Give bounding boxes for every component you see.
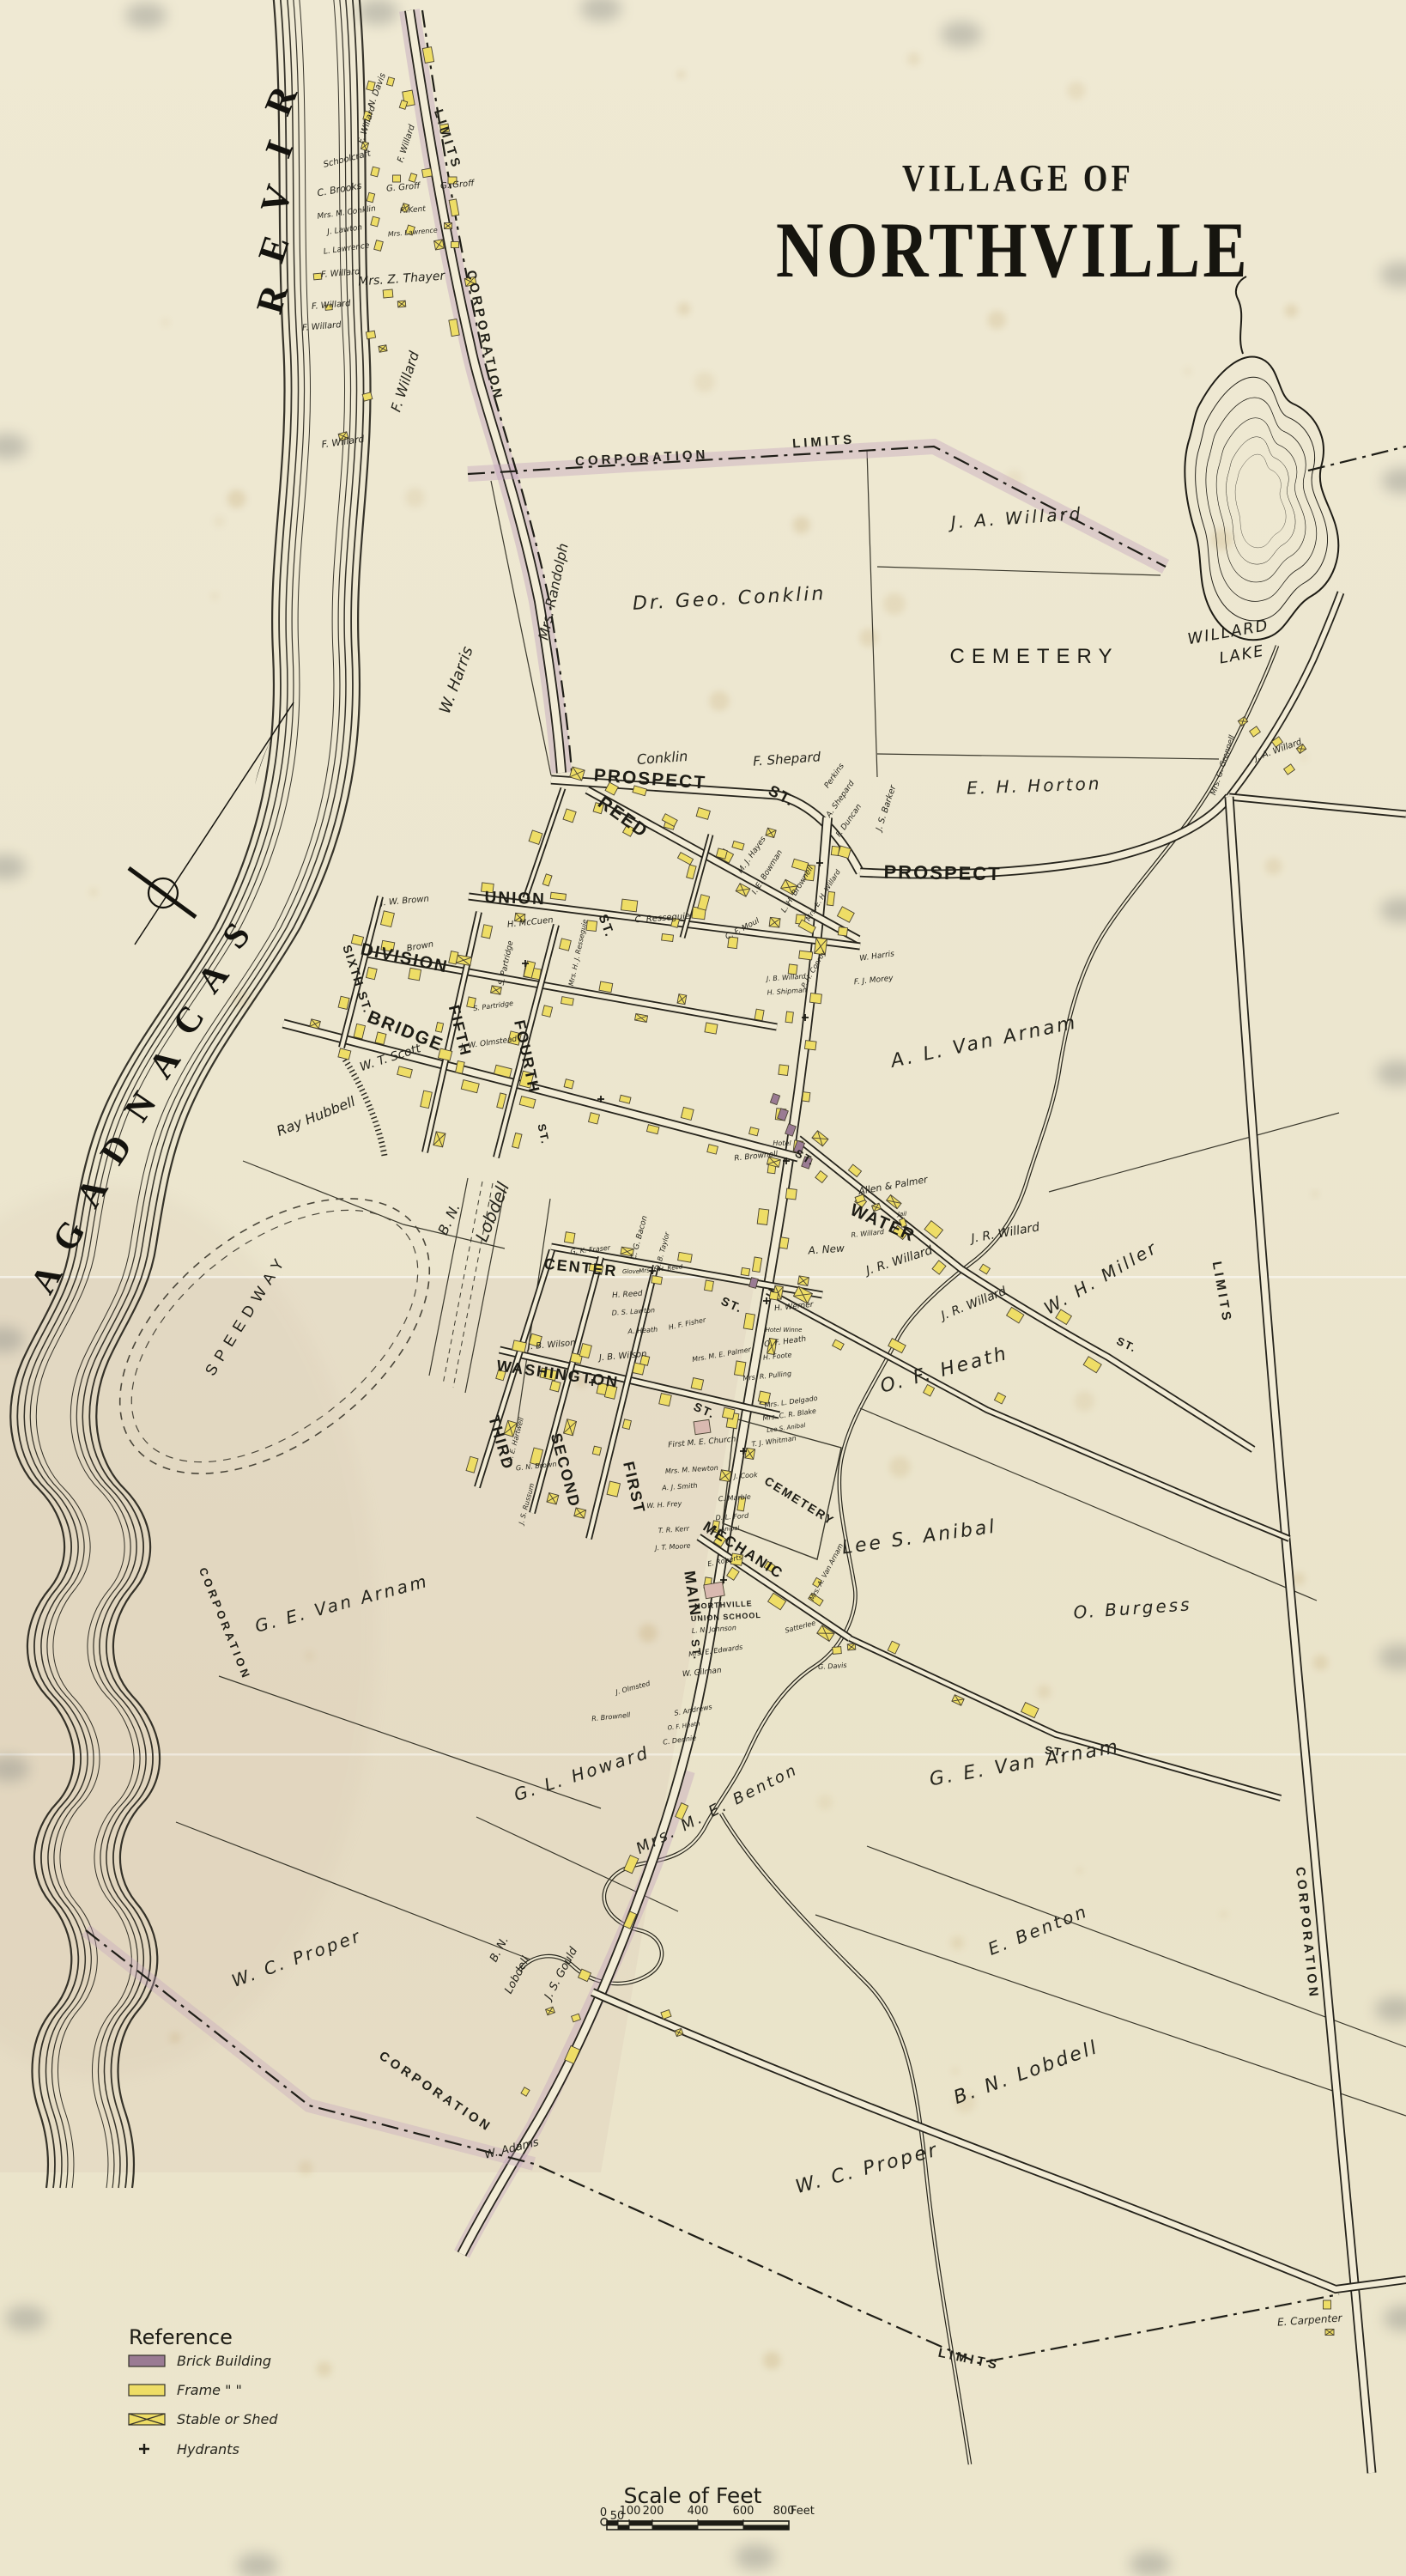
legend-label-frame: Frame " " xyxy=(177,2382,242,2398)
frame-building xyxy=(799,951,813,960)
scan-smudge xyxy=(1130,2551,1171,2576)
scale-tick-400: 400 xyxy=(688,2505,709,2518)
scale-tick-200: 200 xyxy=(643,2505,664,2518)
map-label: F. Willard xyxy=(387,349,422,414)
frame-building xyxy=(727,1567,739,1580)
foxing-dot xyxy=(1220,1911,1227,1918)
frame-building xyxy=(785,1012,793,1023)
frame-building xyxy=(371,216,379,227)
legend-swatch-brick xyxy=(129,2355,165,2366)
frame-building xyxy=(397,1066,413,1078)
map-label: E. Carpenter xyxy=(1277,2312,1343,2328)
frame-building xyxy=(375,1032,386,1045)
map-label: LIMITS xyxy=(1209,1261,1234,1325)
map-label: UNION xyxy=(484,889,546,908)
property-line xyxy=(877,567,1161,575)
map-label: CEMETERY xyxy=(950,645,1119,668)
road-surface xyxy=(1229,797,1406,814)
map-label: J. S. Anibal xyxy=(706,1525,740,1534)
map-label: J. S. Barker xyxy=(874,783,898,834)
frame-building xyxy=(752,1257,761,1273)
frame-building xyxy=(646,1125,658,1134)
map-label: F. Willard xyxy=(312,299,352,312)
frame-building xyxy=(932,1261,946,1274)
frame-building xyxy=(482,925,493,939)
frame-building xyxy=(367,967,378,979)
frame-building xyxy=(707,1145,718,1154)
map-label: J. W. Brown xyxy=(379,895,429,908)
map-label: NORTHVILLE xyxy=(694,1599,753,1611)
foxing-dot xyxy=(1185,368,1191,374)
scan-smudge xyxy=(1380,897,1406,923)
property-line xyxy=(815,1915,1406,2116)
scan-smudge xyxy=(1382,468,1406,494)
map-label: Conklin xyxy=(636,748,688,768)
frame-building xyxy=(621,899,638,912)
map-label: M. J. Hayes xyxy=(736,835,768,875)
foxing-dot xyxy=(1312,1655,1328,1670)
frame-building xyxy=(779,1237,789,1249)
map-label: Mrs. Z. Thayer xyxy=(358,269,446,289)
foxing-dot xyxy=(161,319,170,327)
foxing-dot xyxy=(987,311,1005,329)
scan-smudge xyxy=(580,0,621,21)
map-label: Hotel xyxy=(773,1139,791,1147)
foxing-dot xyxy=(214,516,224,526)
legend-header: Reference xyxy=(129,2325,233,2349)
frame-building xyxy=(599,981,613,993)
frame-building xyxy=(550,892,566,900)
legend-label-stable: Stable or Shed xyxy=(177,2411,278,2427)
road-casing xyxy=(850,1638,1281,1798)
stable-shed xyxy=(766,828,776,837)
frame-building xyxy=(804,1041,816,1050)
stable-shed xyxy=(491,986,502,994)
property-line xyxy=(243,1161,505,1249)
foxing-dot xyxy=(1312,1191,1318,1196)
stable-shed xyxy=(719,1470,731,1482)
scan-smudge xyxy=(237,2553,278,2576)
foxing-dot xyxy=(169,2032,180,2044)
legend: Reference Brick Building Frame " " Stabl… xyxy=(129,2325,278,2458)
frame-building xyxy=(451,242,459,248)
scale-tick-0: 0 xyxy=(600,2506,607,2519)
stable-shed xyxy=(434,240,445,250)
road-surface xyxy=(850,1638,1281,1798)
frame-building xyxy=(561,997,574,1005)
scan-smudge xyxy=(1377,1060,1406,1086)
frame-building xyxy=(1083,1357,1101,1373)
lake-contour xyxy=(1227,437,1296,564)
stable-shed xyxy=(745,1448,755,1459)
map-label: G. Groff xyxy=(386,181,422,194)
stable-shed xyxy=(797,1276,809,1286)
frame-building xyxy=(1324,2300,1331,2309)
frame-building xyxy=(386,77,394,87)
scan-smudge xyxy=(1375,1996,1406,2022)
frame-building xyxy=(678,1252,693,1262)
scan-smudge xyxy=(0,434,27,459)
frame-building xyxy=(563,809,576,823)
foxing-dot xyxy=(1285,304,1299,318)
map-label: Dr. Geo. Conklin xyxy=(632,583,827,615)
scale-bar: Scale of Feet 0 50 100 200 400 600 800 F… xyxy=(600,2483,815,2530)
lake-contour xyxy=(1206,398,1317,601)
frame-building xyxy=(1021,1703,1039,1718)
creek xyxy=(721,1814,970,2464)
foxing-dot xyxy=(1211,529,1233,550)
frame-building xyxy=(354,1024,365,1038)
frame-building xyxy=(564,1232,574,1243)
frame-building xyxy=(1284,764,1295,775)
property-line xyxy=(877,754,1219,759)
scan-smudge xyxy=(357,0,398,25)
frame-building xyxy=(696,808,710,820)
scan-smudge xyxy=(0,854,26,880)
foxing-dot xyxy=(211,592,218,599)
foxing-dot xyxy=(90,889,98,896)
map-label: LAKE xyxy=(1218,642,1266,668)
map-label: J. R. Willard xyxy=(967,1220,1040,1246)
frame-building xyxy=(619,1095,631,1103)
map-label: R. Willard xyxy=(851,1228,885,1239)
legend-swatch-stable xyxy=(129,2414,165,2425)
scale-tick-100: 100 xyxy=(620,2505,641,2518)
stable-shed xyxy=(635,1014,648,1023)
frame-building xyxy=(374,240,384,252)
title-line2: NORTHVILLE xyxy=(776,206,1250,294)
stable-shed xyxy=(379,345,387,352)
map-label: F. Kent xyxy=(399,205,426,216)
frame-building xyxy=(383,289,393,298)
stable-shed xyxy=(847,1643,856,1650)
frame-building xyxy=(542,874,552,886)
frame-building xyxy=(393,175,401,182)
scan-smudge xyxy=(941,21,982,47)
scan-smudge xyxy=(1380,262,1406,288)
legend-swatch-frame xyxy=(129,2385,165,2396)
frame-building xyxy=(435,1023,443,1033)
frame-building xyxy=(542,1005,552,1018)
frame-building xyxy=(662,934,674,942)
frame-building xyxy=(769,1291,778,1300)
foxing-dot xyxy=(1265,858,1282,875)
frame-building xyxy=(592,1446,601,1455)
frame-building xyxy=(519,1097,536,1109)
property-line xyxy=(867,450,877,777)
frame-building xyxy=(399,100,407,110)
frame-building xyxy=(659,1394,672,1406)
map-label: Allen & Palmer xyxy=(857,1174,930,1197)
frame-building xyxy=(705,1023,718,1034)
north-arrow-crossbar xyxy=(129,868,196,917)
map-label: A. L. Van Arnam xyxy=(888,1012,1080,1072)
foxing-dot xyxy=(763,2351,781,2369)
road-surface xyxy=(592,1992,1406,2289)
legend-label-hydrants: Hydrants xyxy=(177,2441,239,2458)
foxing-dot xyxy=(709,691,730,712)
frame-building xyxy=(564,1079,573,1089)
map-label: Mrs. H. J. Resseguie xyxy=(567,919,589,987)
frame-building xyxy=(512,1133,522,1148)
frame-building xyxy=(837,907,854,922)
legend-label-brick: Brick Building xyxy=(177,2353,271,2369)
foxing-dot xyxy=(677,70,685,78)
map-label: CEMETERY xyxy=(762,1473,838,1528)
foxing-dot xyxy=(677,302,690,315)
map-label: B. N. xyxy=(434,1200,463,1237)
map-label: B. N. Lobdell xyxy=(951,2037,1102,2109)
frame-building xyxy=(785,1188,797,1200)
road-casing xyxy=(592,1992,1406,2289)
map-label: LIMITS xyxy=(936,2346,1001,2373)
foxing-dot xyxy=(817,1795,833,1810)
foxing-dot xyxy=(305,1651,314,1661)
scan-smudge xyxy=(125,3,167,28)
map-label: J. R. Willard xyxy=(936,1285,1008,1324)
frame-building xyxy=(705,1280,714,1291)
map-label: Ray Hubbell xyxy=(275,1093,358,1139)
map-label: H. Shipman xyxy=(767,986,807,996)
map-label: E xyxy=(250,230,298,268)
public-building xyxy=(704,1582,724,1599)
foxing-dot xyxy=(405,488,425,507)
map-label: Lee S. Anibal xyxy=(840,1516,998,1559)
frame-building xyxy=(833,1340,845,1350)
map-label: G. E. Van Arnam xyxy=(928,1736,1122,1791)
map-label: D xyxy=(93,1127,141,1171)
foxing-dot xyxy=(889,1456,911,1478)
map-label: J. Cook xyxy=(732,1471,758,1480)
frame-building xyxy=(421,168,432,178)
foxing-dot xyxy=(883,593,906,616)
map-label: Mrs. A. Van Arnam xyxy=(808,1542,845,1602)
frame-building xyxy=(924,1221,943,1239)
frame-building xyxy=(802,1092,810,1102)
map-label: W. Harris xyxy=(859,950,895,963)
frame-building xyxy=(338,1048,351,1060)
property-line xyxy=(1049,1113,1339,1192)
map-label: Jail xyxy=(896,1211,906,1218)
map-label: T. J. Whitman xyxy=(751,1434,797,1448)
foxing-dot xyxy=(1037,1685,1051,1698)
foxing-dot xyxy=(1077,1868,1083,1874)
map-label: G. Davis xyxy=(818,1662,847,1671)
map-label: C. G. Bacon xyxy=(629,1215,649,1261)
map-label: F. Shepard xyxy=(753,749,821,769)
frame-building xyxy=(691,1378,703,1390)
foxing-dot xyxy=(1074,1391,1094,1412)
northville-map: RIVERSACANDAGAWILLARDLAKEPROSPECTST.PROS… xyxy=(0,0,1406,2576)
frame-building xyxy=(979,1264,990,1274)
map-label: E. Benton xyxy=(985,1900,1091,1959)
frame-building xyxy=(560,939,572,951)
title-line1: VILLAGE OF xyxy=(902,157,1134,199)
frame-building xyxy=(994,1393,1005,1404)
map-label: E. H. Horton xyxy=(967,773,1102,798)
frame-building xyxy=(1250,726,1261,737)
map-label: Mrs. Lawrence xyxy=(388,226,439,238)
scan-smudge xyxy=(735,2544,776,2570)
stable-shed xyxy=(445,223,452,229)
stable-shed xyxy=(677,994,687,1005)
map-label: J. Lawton xyxy=(325,223,363,237)
lake-contour xyxy=(1235,454,1286,548)
frame-building xyxy=(838,927,847,936)
road-surface xyxy=(767,1291,1289,1539)
foxing-dot xyxy=(1300,754,1307,761)
map-title: VILLAGE OF NORTHVILLE xyxy=(776,157,1250,294)
frame-building xyxy=(338,996,349,1009)
map-label: J. R. Willard xyxy=(862,1243,934,1279)
road-casing xyxy=(767,1291,1289,1539)
foxing-dot xyxy=(951,1936,964,1949)
frame-building xyxy=(497,1093,506,1109)
scan-smudge xyxy=(1379,1644,1406,1670)
frame-building xyxy=(809,993,821,1004)
frame-building xyxy=(755,1009,764,1020)
legend-hydrant-symbol xyxy=(139,2444,149,2454)
frame-building xyxy=(366,331,375,339)
fold-crease xyxy=(0,1753,1406,1756)
map-label: PROSPECT xyxy=(883,861,1001,884)
frame-building xyxy=(833,1647,842,1655)
frame-building xyxy=(687,865,696,879)
map-label: S. Partridge xyxy=(473,999,514,1012)
map-label: F. Willard xyxy=(396,123,417,163)
creek-center xyxy=(721,1814,970,2464)
map-label: H. McCuen xyxy=(506,915,554,930)
frame-building xyxy=(749,1127,760,1136)
foxing-dot xyxy=(227,489,246,508)
scan-smudge xyxy=(5,2306,46,2331)
map-label: Satterlee xyxy=(785,1619,817,1634)
frame-building xyxy=(380,911,394,927)
frame-building xyxy=(741,1267,749,1275)
frame-building xyxy=(716,848,727,859)
map-label: ST. xyxy=(1114,1334,1139,1355)
willard-lake xyxy=(1185,276,1338,640)
map-label: C. Marble xyxy=(718,1493,752,1504)
frame-building xyxy=(589,1113,600,1124)
stable-shed xyxy=(397,301,406,307)
map-label: F. Willard xyxy=(321,267,361,280)
map-label: Hotel Winne xyxy=(766,1327,803,1334)
frame-building xyxy=(732,841,744,850)
map-label: O. Burgess xyxy=(1073,1594,1192,1623)
frame-building xyxy=(529,830,542,844)
map-label: J. B. Willard xyxy=(765,972,807,982)
property-line xyxy=(860,1408,1317,1601)
map-page: RIVERSACANDAGAWILLARDLAKEPROSPECTST.PROS… xyxy=(0,0,1406,2576)
frame-building xyxy=(421,1091,433,1109)
public-building xyxy=(694,1419,711,1434)
stable-shed xyxy=(547,1493,559,1504)
map-label: O. F. Heath xyxy=(764,1335,807,1350)
stable-shed xyxy=(574,1508,586,1518)
map-label: Glove xyxy=(622,1268,639,1275)
foxing-dot xyxy=(793,516,810,533)
foxing-dot xyxy=(907,52,921,66)
map-label: J. A. Willard xyxy=(947,503,1083,533)
map-label: Perkins xyxy=(823,762,846,790)
stable-shed xyxy=(736,884,750,896)
frame-building xyxy=(815,1171,827,1183)
frame-building xyxy=(779,1065,789,1076)
foxing-dot xyxy=(317,2361,332,2377)
stable-shed xyxy=(812,1131,828,1146)
scale-unit: Feet xyxy=(791,2505,815,2518)
stable-shed xyxy=(769,917,780,927)
foxing-dot xyxy=(639,1624,658,1643)
frame-building xyxy=(798,920,815,933)
frame-building xyxy=(367,192,374,202)
frame-building xyxy=(888,1641,900,1654)
frame-building xyxy=(757,1209,769,1225)
lake-contour xyxy=(1216,418,1306,582)
map-label: R xyxy=(248,279,296,318)
map-label: ST. xyxy=(535,1122,552,1145)
map-label: A. New xyxy=(807,1242,845,1257)
frame-building xyxy=(651,1276,663,1285)
foxing-dot xyxy=(1067,82,1085,100)
frame-building xyxy=(677,853,693,865)
foxing-dot xyxy=(299,2160,313,2175)
map-label: Lobdell xyxy=(471,1179,513,1244)
north-arrow xyxy=(129,702,294,945)
scale-tick-600: 600 xyxy=(733,2505,755,2518)
map-label: F. Willard xyxy=(356,104,378,144)
map-label: L. N. Johnson xyxy=(692,1624,737,1635)
frame-building xyxy=(622,1419,631,1430)
frame-building xyxy=(722,1407,735,1419)
map-label: G. Groff xyxy=(440,179,476,191)
map-label: D. L. Ford xyxy=(715,1512,749,1522)
stable-shed xyxy=(1325,2330,1334,2336)
frame-building xyxy=(661,2010,671,2020)
brick-building xyxy=(770,1093,779,1104)
map-label: W. Harris xyxy=(436,644,477,716)
frame-building xyxy=(681,1107,694,1120)
map-label: A xyxy=(142,1042,190,1086)
scan-smudge xyxy=(1384,2306,1406,2331)
foxing-dot xyxy=(694,372,715,392)
frame-building xyxy=(461,1080,479,1093)
frame-building xyxy=(743,1313,755,1329)
map-label: W. C. Proper xyxy=(793,2139,941,2198)
stable-shed xyxy=(433,1132,445,1147)
map-label: F. J. Morey xyxy=(853,975,894,987)
frame-building xyxy=(371,167,379,177)
foxing-dot xyxy=(859,629,877,647)
stable-shed xyxy=(952,1695,964,1706)
frame-building xyxy=(848,1164,861,1176)
foxing-dot xyxy=(952,2068,959,2075)
frame-building xyxy=(698,895,710,910)
map-label: Mrs. M. Conklin xyxy=(317,204,377,222)
map-label: A xyxy=(190,955,238,1000)
